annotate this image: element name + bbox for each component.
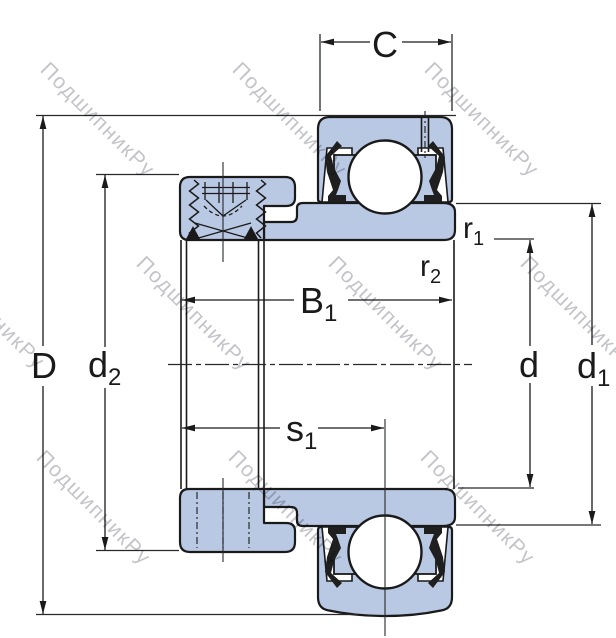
label-r2: r2: [420, 250, 441, 288]
label-d1: d1: [577, 345, 610, 392]
inner-ring-sleeve-top: [264, 203, 455, 240]
label-B1: B1: [300, 280, 337, 327]
label-C: C: [372, 24, 398, 65]
label-d: d: [519, 344, 539, 385]
inner-ring-sleeve-bottom: [264, 489, 455, 526]
bearing-cross-section-svg: C D d2 B1 s1 r1 r2 d d1: [0, 0, 616, 638]
ball-top: [349, 141, 422, 214]
bearing-drawing-page: C D d2 B1 s1 r1 r2 d d1 ПодшипникРу Подш…: [0, 0, 616, 638]
label-r1: r1: [463, 212, 484, 250]
label-s1: s1: [286, 408, 317, 455]
label-D: D: [31, 345, 57, 386]
label-d2: d2: [88, 344, 121, 391]
